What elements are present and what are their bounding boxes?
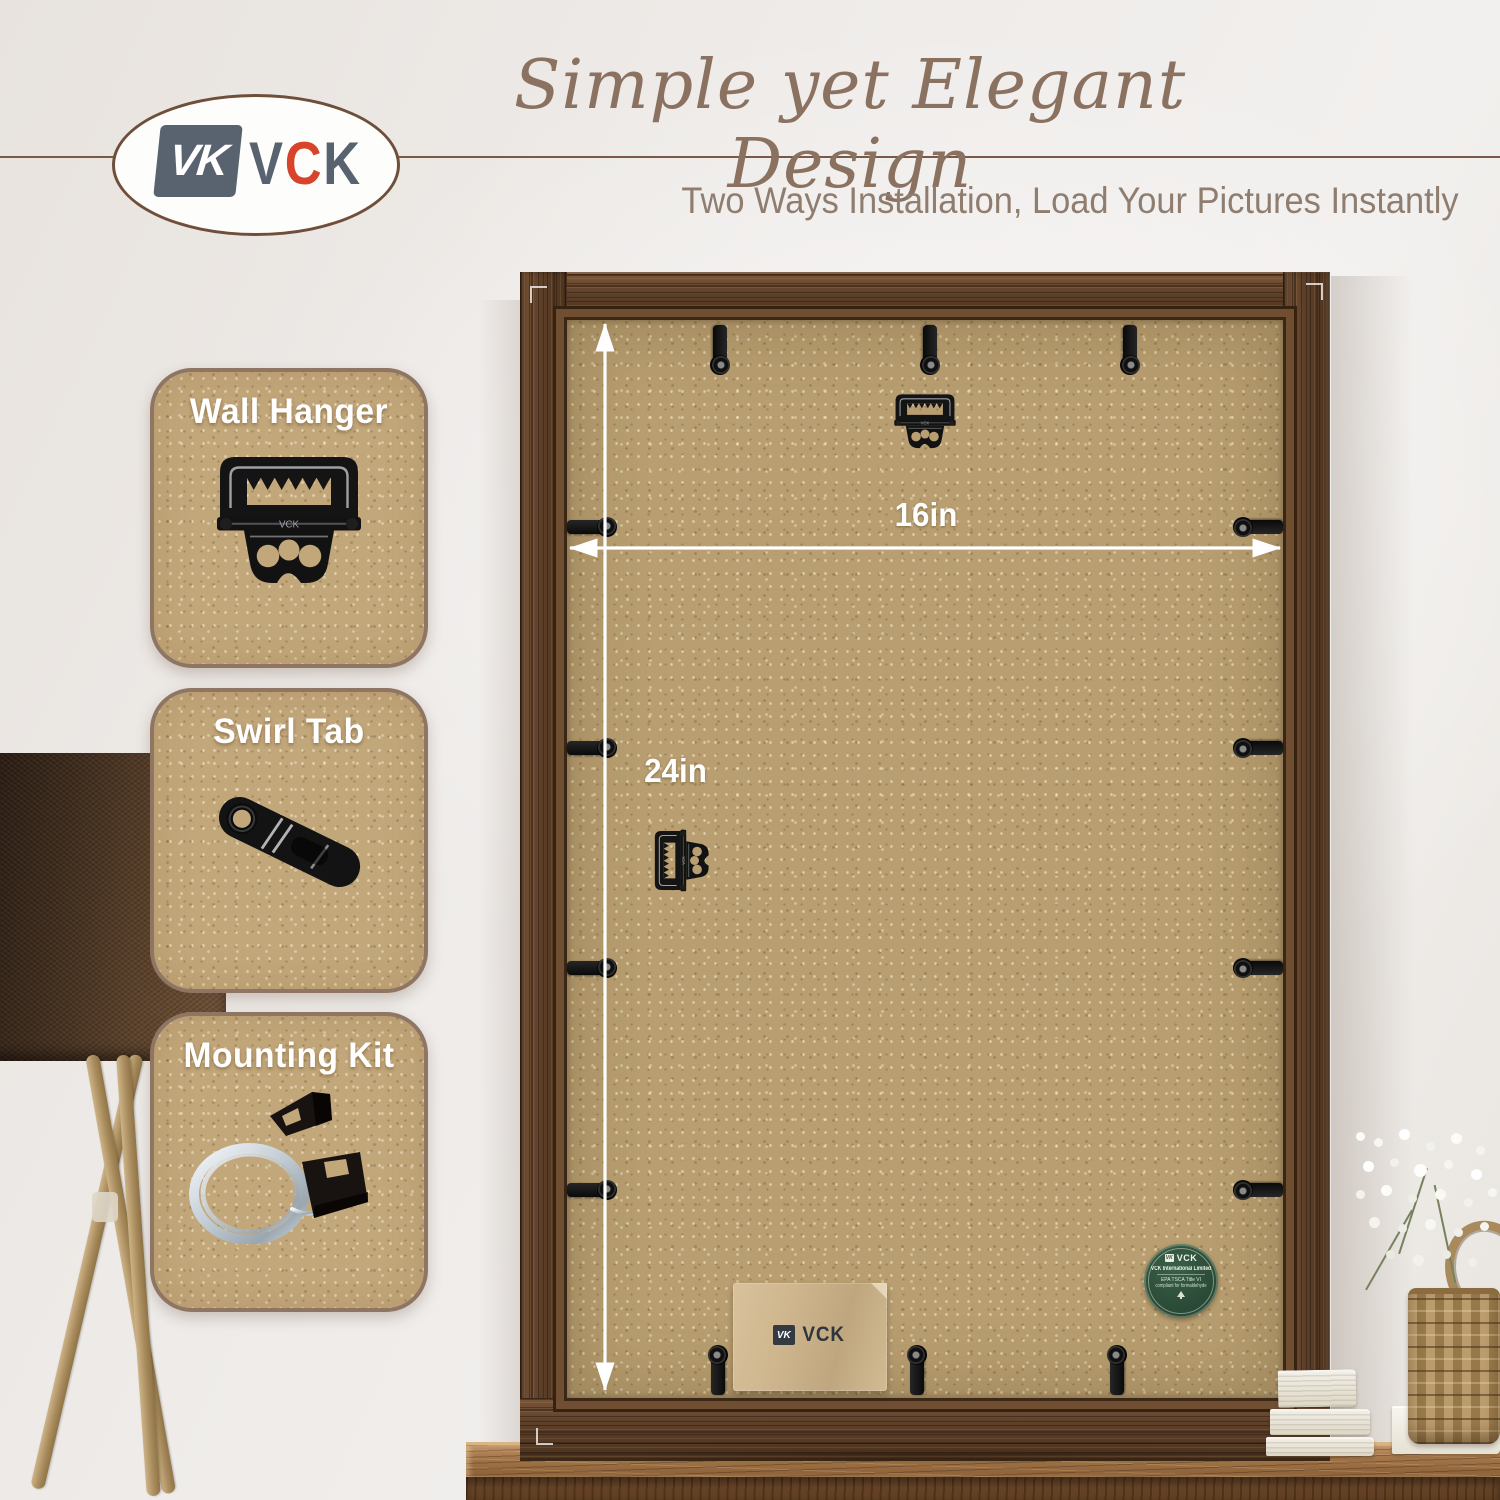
- product-infographic: VCK: [0, 0, 1500, 1500]
- width-dimension-label: 16in: [869, 496, 983, 534]
- height-dimension-label: 24in: [630, 752, 720, 790]
- book: [1270, 1409, 1370, 1435]
- swirl-tab-icon: [210, 788, 369, 895]
- callout-label: Wall Hanger: [159, 392, 418, 432]
- lamp-joint: [92, 1192, 118, 1222]
- sticker-org-text: VCK International Limited: [1151, 1266, 1212, 1272]
- sticker-logo: VK VCK: [1144, 1253, 1218, 1263]
- wall-shadow: [468, 300, 520, 1450]
- sticker-divider: [1157, 1274, 1205, 1275]
- book: [1266, 1437, 1374, 1456]
- brand-letter: V: [249, 129, 285, 198]
- sticker-brand-text: VCK: [1177, 1253, 1198, 1263]
- book: [1278, 1369, 1357, 1407]
- mounting-clip-icon: [270, 1092, 332, 1136]
- tree-icon: [1144, 1291, 1218, 1299]
- callout-label: Swirl Tab: [159, 712, 418, 752]
- sticker-cert-line2: compliant for formaldehyde: [1150, 1283, 1213, 1289]
- callout-card-mounting-kit: Mounting Kit: [150, 1012, 428, 1312]
- page-subtitle: Two Ways Installation, Load Your Picture…: [670, 180, 1470, 222]
- callout-label: Mounting Kit: [159, 1036, 418, 1076]
- sideboard-front: [466, 1477, 1500, 1500]
- vck-monogram-icon: VK: [1165, 1254, 1174, 1262]
- callout-card-wall-hanger: Wall Hanger: [150, 368, 428, 668]
- mounting-kit-icon: [174, 1074, 404, 1244]
- flower-stem: [1365, 1210, 1413, 1291]
- mounting-clip-icon: [302, 1152, 368, 1218]
- brand-letter-accent: C: [285, 129, 324, 198]
- flower-bouquet: [1352, 1126, 1500, 1336]
- flower-stem: [1434, 1185, 1457, 1283]
- vck-brand-text: V C K: [249, 129, 362, 198]
- vck-monogram-icon: VK: [153, 125, 243, 197]
- callout-card-swirl-tab: Swirl Tab: [150, 688, 428, 993]
- vck-monogram-icon: VK: [773, 1325, 795, 1345]
- brand-pouch: VK VCK: [733, 1283, 887, 1391]
- wall-hanger-icon: [214, 454, 364, 592]
- vck-logo: VK V C K: [112, 94, 400, 236]
- brand-letter: K: [323, 129, 362, 198]
- pouch-logo: VK VCK: [733, 1323, 887, 1347]
- compliance-sticker: VK VCK VCK International Limited EPA TSC…: [1144, 1244, 1218, 1318]
- pouch-brand-text: VCK: [802, 1323, 845, 1347]
- flower-blossoms: [1356, 1132, 1365, 1141]
- flower-stem: [1398, 1168, 1428, 1254]
